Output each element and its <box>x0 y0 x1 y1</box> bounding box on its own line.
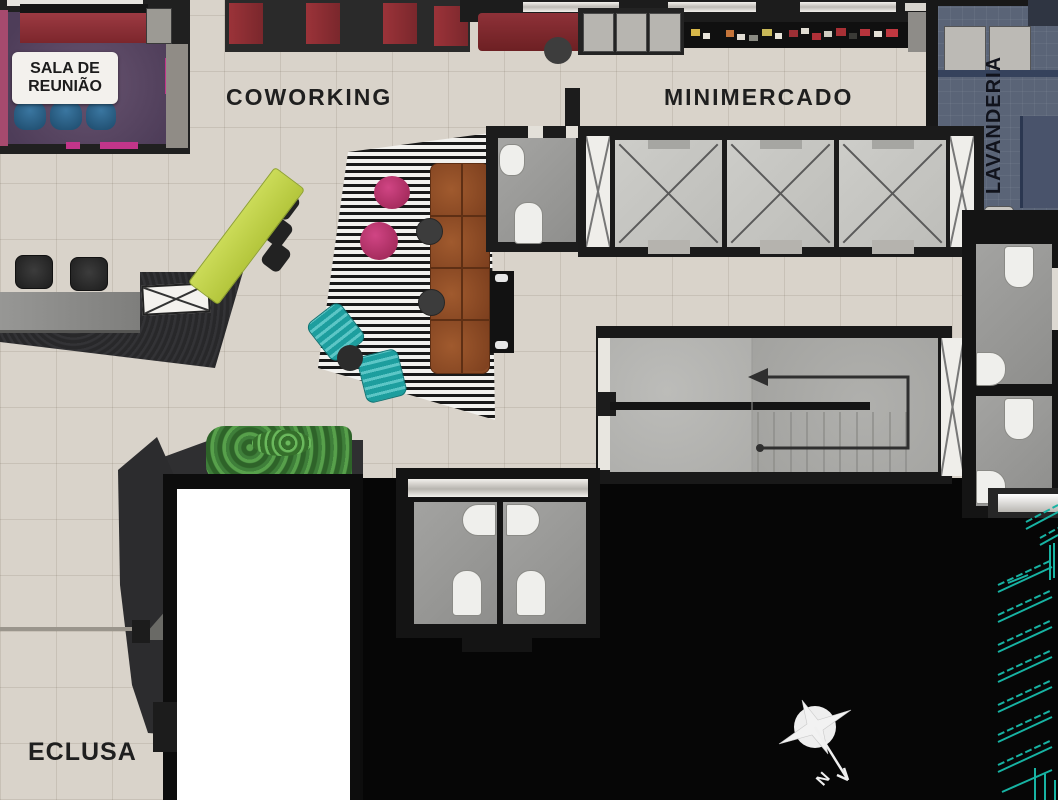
product-item <box>860 29 870 36</box>
product-item <box>691 29 700 36</box>
sofa-cushion <box>431 321 489 371</box>
stair-treads <box>752 338 906 472</box>
coffee-stool <box>337 345 363 371</box>
product-item <box>703 33 710 39</box>
laundry-corner <box>1028 0 1058 26</box>
elevator-x-icon <box>839 140 946 247</box>
sink-icon <box>499 144 525 176</box>
meeting-room-label-line1: SALA DE <box>30 60 100 78</box>
glass-partition <box>408 479 588 497</box>
product-item <box>726 30 734 37</box>
elevator-door <box>760 240 802 254</box>
elevator-door-top <box>648 140 690 149</box>
elevator-shaft <box>615 140 722 247</box>
meeting-room-label-line2: REUNIÃO <box>28 78 102 96</box>
product-item <box>824 31 832 37</box>
elevator-door <box>872 240 914 254</box>
service-duct <box>586 136 610 247</box>
product-item <box>789 30 798 37</box>
side-table <box>418 289 445 316</box>
side-table <box>416 218 443 245</box>
elevator-door-top <box>760 140 802 149</box>
gate-post <box>132 620 150 643</box>
meeting-chair <box>86 100 116 130</box>
toilet-icon <box>514 202 543 244</box>
void-opening <box>177 489 350 800</box>
product-item <box>874 31 882 37</box>
elevator-shaft <box>727 140 834 247</box>
skylight <box>800 2 896 12</box>
washing-machine <box>944 26 986 72</box>
product-item <box>801 28 809 34</box>
elevator-x-icon <box>727 140 834 247</box>
booth-seat <box>306 3 340 44</box>
meeting-room-sign: SALA DE REUNIÃO <box>12 52 118 104</box>
product-item <box>737 34 745 40</box>
door-marker <box>100 142 138 149</box>
product-item <box>762 29 772 36</box>
elevator-x-icon <box>615 140 722 247</box>
toilet-icon <box>1004 398 1034 440</box>
stair-direction <box>596 326 952 484</box>
elevator-door-top <box>872 140 914 149</box>
toilet-icon <box>452 570 482 616</box>
product-item <box>812 33 821 40</box>
console-handle <box>495 274 508 282</box>
minimercado-label: MINIMERCADO <box>664 84 853 111</box>
product-item <box>886 29 898 37</box>
opening-notch <box>153 702 177 752</box>
plant-icon <box>252 430 312 456</box>
service-duct <box>941 338 964 476</box>
office-chair <box>70 257 108 291</box>
meeting-chair <box>50 100 82 130</box>
market-endcap <box>908 12 928 52</box>
sink-icon <box>976 352 1006 386</box>
console-handle <box>495 341 508 349</box>
eclusa-label: ECLUSA <box>28 738 137 767</box>
product-item <box>775 33 782 39</box>
sofa-cushion <box>431 164 489 217</box>
credenza-back <box>20 4 148 13</box>
compass-rose-icon: N <box>770 680 880 800</box>
laundry-counter <box>1020 116 1058 208</box>
meeting-chair <box>14 100 46 130</box>
sofa <box>430 163 490 374</box>
bathroom-step <box>462 636 532 652</box>
door-gap <box>528 126 543 138</box>
booth-seat <box>229 3 263 44</box>
gate-line <box>0 627 140 631</box>
meeting-cabinet <box>146 8 172 44</box>
reception-counter <box>0 292 140 333</box>
elevator-shaft <box>839 140 946 247</box>
toilet-icon <box>516 570 546 616</box>
vending-unit <box>616 13 647 52</box>
duct-x-icon <box>941 338 964 476</box>
laundry-label: LAVANDERIA <box>983 40 1017 210</box>
pouf <box>374 176 410 209</box>
ramp-outline-icon <box>985 495 1058 800</box>
meeting-credenza <box>20 13 148 43</box>
stair-arrow-icon <box>748 368 908 452</box>
sink-icon <box>506 504 540 536</box>
vending-unit <box>583 13 614 52</box>
product-item <box>849 33 857 39</box>
coworking-label: COWORKING <box>226 84 392 111</box>
meeting-room-left-wall <box>0 10 8 146</box>
duct-x-icon <box>586 136 610 247</box>
window-slit <box>1052 268 1058 330</box>
table-chair <box>259 240 292 274</box>
bar-stool <box>544 37 572 64</box>
floor-plan-canvas: ECLUSA SALA DE REUNIÃO <box>0 0 1058 800</box>
sink-icon <box>462 504 496 536</box>
product-item <box>749 35 758 41</box>
office-chair <box>15 255 53 289</box>
sofa-seam <box>461 164 463 373</box>
booth-seat <box>383 3 417 44</box>
vending-unit <box>649 13 681 52</box>
meeting-room-side-wall <box>166 44 188 148</box>
toilet-icon <box>1004 246 1034 288</box>
north-label: N <box>813 769 833 789</box>
pouf <box>360 222 398 260</box>
elevator-door <box>648 240 690 254</box>
door-marker <box>66 142 80 149</box>
product-item <box>836 28 846 36</box>
